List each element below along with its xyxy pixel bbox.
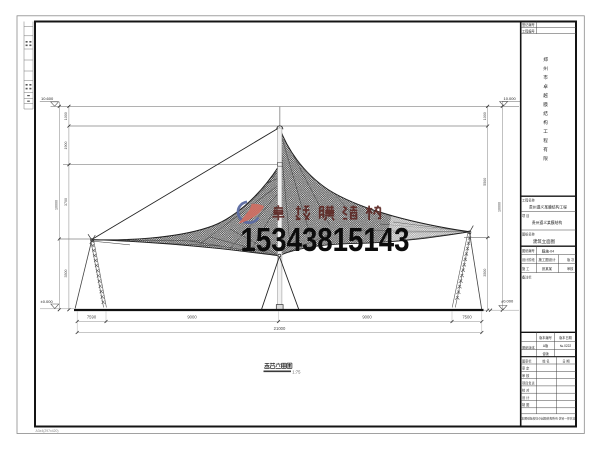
svg-text:构: 构 bbox=[543, 119, 548, 126]
svg-text:制 图: 制 图 bbox=[522, 402, 529, 407]
svg-text:9000: 9000 bbox=[187, 315, 197, 320]
svg-text:姓 名: 姓 名 bbox=[542, 358, 549, 363]
svg-text:工程名称: 工程名称 bbox=[522, 198, 536, 203]
svg-text:施 工: 施 工 bbox=[522, 266, 530, 271]
svg-text:7500: 7500 bbox=[462, 315, 472, 320]
svg-text:审 定: 审 定 bbox=[522, 366, 530, 371]
svg-text:图纸编号: 图纸编号 bbox=[522, 248, 535, 253]
svg-text:7590: 7590 bbox=[87, 315, 97, 320]
svg-text:10.600: 10.600 bbox=[41, 96, 54, 101]
svg-text:设 计: 设 计 bbox=[522, 395, 530, 400]
svg-text:10.000: 10.000 bbox=[504, 96, 517, 101]
svg-text:图纸名称: 图纸名称 bbox=[522, 231, 536, 236]
svg-text:建筑立面图: 建筑立面图 bbox=[533, 238, 556, 245]
svg-text:№.0222: №.0222 bbox=[560, 344, 572, 348]
svg-text:版本编号: 版本编号 bbox=[539, 335, 552, 340]
svg-text:贵州遵义某膜结构工程: 贵州遵义某膜结构工程 bbox=[529, 205, 567, 210]
svg-text:1000: 1000 bbox=[64, 112, 68, 120]
svg-text:3500: 3500 bbox=[64, 270, 68, 278]
svg-text:±0.000: ±0.000 bbox=[41, 299, 54, 304]
svg-text:越: 越 bbox=[543, 92, 548, 99]
svg-text:贵州遵义某膜结构: 贵州遵义某膜结构 bbox=[532, 220, 563, 225]
svg-text:工: 工 bbox=[543, 129, 548, 134]
svg-text:市: 市 bbox=[543, 74, 548, 81]
svg-text:1:75: 1:75 bbox=[292, 369, 301, 374]
svg-text:施工图设计: 施工图设计 bbox=[539, 257, 557, 262]
svg-text:10000: 10000 bbox=[55, 200, 59, 210]
svg-text:限: 限 bbox=[543, 155, 548, 162]
svg-text:21000: 21000 bbox=[274, 326, 286, 331]
svg-text:±0.000: ±0.000 bbox=[501, 299, 514, 304]
svg-text:合版: 合版 bbox=[542, 351, 549, 356]
svg-text:有: 有 bbox=[543, 146, 548, 153]
svg-text:9000: 9000 bbox=[362, 315, 372, 320]
svg-text:州: 州 bbox=[543, 66, 548, 71]
svg-text:张某某: 张某某 bbox=[542, 266, 553, 271]
svg-text:A3x4(297x420): A3x4(297x420) bbox=[36, 429, 59, 433]
svg-text:审核: 审核 bbox=[567, 266, 574, 271]
svg-text:审 核: 审 核 bbox=[522, 373, 530, 378]
svg-text:日 期: 日 期 bbox=[562, 358, 569, 363]
svg-text:设计阶段: 设计阶段 bbox=[522, 257, 536, 262]
svg-text:图审栏: 图审栏 bbox=[522, 358, 532, 363]
svg-text:5500: 5500 bbox=[483, 178, 487, 186]
svg-text:3500: 3500 bbox=[483, 269, 487, 277]
svg-text:郑: 郑 bbox=[543, 56, 548, 63]
svg-text:项目负责: 项目负责 bbox=[522, 380, 535, 385]
svg-text:10000: 10000 bbox=[498, 202, 502, 212]
svg-text:3700: 3700 bbox=[64, 198, 68, 206]
svg-text:A版: A版 bbox=[543, 343, 549, 348]
svg-text:1000: 1000 bbox=[483, 112, 487, 120]
svg-text:膜: 膜 bbox=[543, 101, 548, 108]
svg-text:版 次: 版 次 bbox=[567, 257, 575, 262]
svg-text:膜施-04: 膜施-04 bbox=[542, 249, 554, 254]
svg-text:1900: 1900 bbox=[64, 142, 68, 150]
svg-text:15343815143: 15343815143 bbox=[241, 220, 410, 258]
svg-text:项 目: 项 目 bbox=[522, 214, 529, 218]
svg-text:备注栏: 备注栏 bbox=[522, 275, 532, 280]
svg-text:结: 结 bbox=[543, 110, 548, 117]
svg-text:登记编号: 登记编号 bbox=[522, 22, 535, 27]
svg-text:程: 程 bbox=[543, 137, 548, 144]
svg-text:卓: 卓 bbox=[543, 83, 548, 90]
svg-text:本图纸版权归卓越膜结构所有 仿冒一律究责: 本图纸版权归卓越膜结构所有 仿冒一律究责 bbox=[522, 417, 576, 421]
svg-text:版本日期: 版本日期 bbox=[559, 335, 572, 340]
svg-text:校 对: 校 对 bbox=[522, 388, 530, 393]
svg-text:图纸版本: 图纸版本 bbox=[522, 345, 536, 350]
svg-text:工程编号: 工程编号 bbox=[522, 28, 535, 33]
